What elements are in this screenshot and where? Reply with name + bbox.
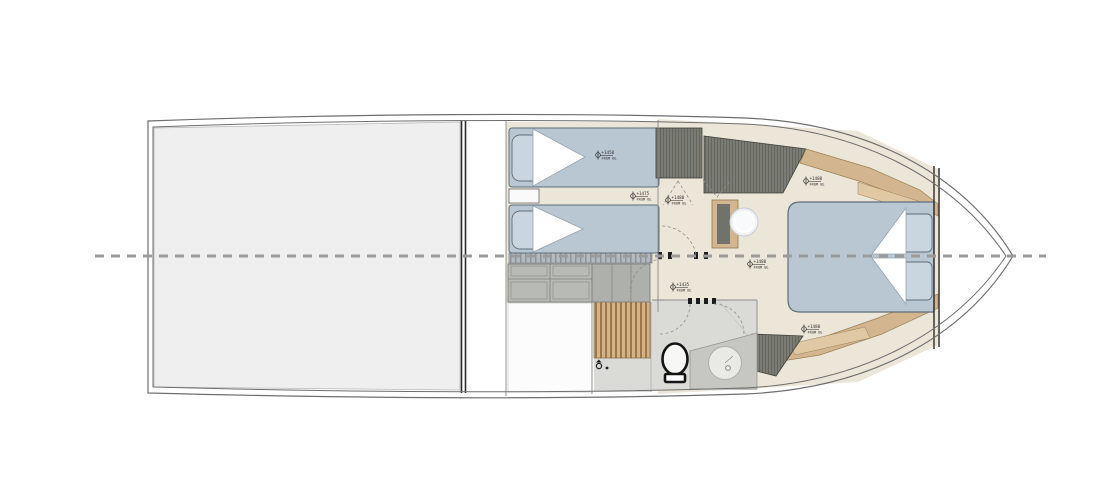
twin-bed-lower (509, 205, 659, 253)
wardrobe-aft (656, 128, 702, 178)
yacht-lower-deck-floor-plan: +1450 FROM BL +1475 FROM BL +1480 FROM B… (0, 0, 1110, 500)
storage-floor (508, 303, 592, 392)
svg-text:+1480: +1480 (754, 259, 767, 264)
locker-doors (592, 264, 650, 302)
pillow (902, 262, 932, 300)
pillow (902, 214, 932, 252)
svg-text:+1480: +1480 (808, 324, 821, 329)
svg-text:+1450: +1450 (602, 150, 615, 155)
svg-text:+1480: +1480 (672, 195, 685, 200)
floor-plan-canvas: +1450 FROM BL +1475 FROM BL +1480 FROM B… (0, 0, 1110, 500)
svg-text:FROM BL: FROM BL (810, 182, 825, 186)
twin-bed-upper (509, 128, 659, 187)
svg-text:+1475: +1475 (637, 191, 650, 196)
svg-text:FROM BL: FROM BL (754, 265, 769, 269)
shower-floor (594, 358, 650, 392)
svg-text:+1480: +1480 (810, 176, 823, 181)
svg-text:FROM BL: FROM BL (602, 156, 617, 160)
svg-text:FROM BL: FROM BL (672, 201, 687, 205)
drawer-cabinet (508, 264, 592, 302)
toilet (663, 344, 688, 383)
svg-text:FROM BL: FROM BL (637, 197, 652, 201)
teak-shower-grating (594, 302, 650, 358)
svg-text:+1435: +1435 (677, 282, 690, 287)
nightstand (509, 189, 539, 203)
svg-text:FROM BL: FROM BL (808, 330, 823, 334)
svg-text:FROM BL: FROM BL (677, 288, 692, 292)
